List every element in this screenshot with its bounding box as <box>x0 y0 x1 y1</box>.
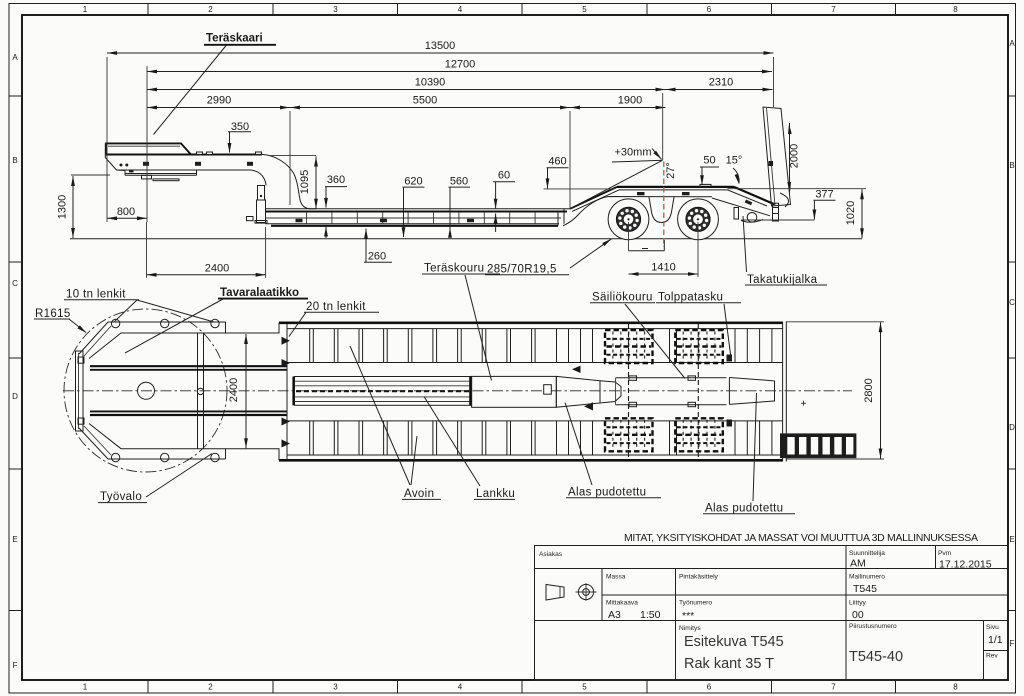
svg-text:1/1: 1/1 <box>988 634 1003 646</box>
svg-text:Asiakas: Asiakas <box>539 551 563 558</box>
svg-text:1410: 1410 <box>651 262 675 274</box>
svg-text:A: A <box>12 53 18 62</box>
svg-text:Pintakäsittely: Pintakäsittely <box>679 574 719 581</box>
svg-text:1020: 1020 <box>845 201 857 225</box>
svg-text:4: 4 <box>458 5 463 14</box>
svg-text:Piirustusnumero: Piirustusnumero <box>849 623 897 630</box>
svg-text:360: 360 <box>327 174 345 186</box>
svg-text:377: 377 <box>815 189 833 201</box>
svg-text:Alas pudotettu: Alas pudotettu <box>568 487 646 499</box>
svg-text:17.12.2015: 17.12.2015 <box>939 559 992 571</box>
svg-text:E: E <box>12 535 17 544</box>
svg-text:1: 1 <box>83 5 88 14</box>
svg-text:MITAT, YKSITYISKOHDAT JA MASSA: MITAT, YKSITYISKOHDAT JA MASSAT VOI MUUT… <box>624 532 978 544</box>
svg-text:R1615: R1615 <box>35 308 71 320</box>
svg-text:Massa: Massa <box>606 574 626 581</box>
svg-text:6: 6 <box>707 5 712 14</box>
svg-text:Pvm: Pvm <box>938 550 952 557</box>
svg-text:A: A <box>1009 39 1015 48</box>
svg-text:T545-40: T545-40 <box>849 649 903 665</box>
svg-text:Esitekuva T545: Esitekuva T545 <box>684 634 784 650</box>
svg-text:Sivu: Sivu <box>986 624 999 631</box>
svg-text:2: 2 <box>208 5 213 14</box>
svg-text:1:50: 1:50 <box>640 609 661 621</box>
svg-text:+30mm: +30mm <box>615 147 652 159</box>
svg-text:B: B <box>1009 161 1014 170</box>
svg-text:Liittyy: Liittyy <box>849 600 867 607</box>
svg-text:Takatukijalka: Takatukijalka <box>747 274 818 286</box>
svg-text:260: 260 <box>368 251 386 263</box>
svg-text:Alas pudotettu: Alas pudotettu <box>705 503 783 515</box>
svg-text:6: 6 <box>707 683 712 692</box>
svg-text:T545: T545 <box>853 583 877 595</box>
svg-text:D: D <box>12 392 18 401</box>
svg-text:7: 7 <box>831 5 836 14</box>
svg-text:Mittakaava: Mittakaava <box>606 600 638 607</box>
svg-text:Nimitys: Nimitys <box>679 625 701 632</box>
svg-text:F: F <box>13 661 18 670</box>
svg-text:Työnumero: Työnumero <box>679 600 712 607</box>
svg-text:Rev: Rev <box>986 653 998 660</box>
svg-text:2: 2 <box>208 683 213 692</box>
svg-text:3: 3 <box>333 5 338 14</box>
svg-text:Suunnittelija: Suunnittelija <box>849 550 885 557</box>
svg-text:F: F <box>1010 639 1015 648</box>
svg-text:5500: 5500 <box>413 95 437 107</box>
svg-text:Rak kant 35 T: Rak kant 35 T <box>684 656 774 672</box>
svg-text:E: E <box>1009 535 1014 544</box>
svg-text:27°: 27° <box>665 162 677 179</box>
svg-text:Tavaralaatikko: Tavaralaatikko <box>220 287 299 299</box>
svg-text:10390: 10390 <box>415 77 446 89</box>
svg-text:20 tn lenkit: 20 tn lenkit <box>306 301 366 313</box>
svg-text:Teräskouru: Teräskouru <box>424 263 484 275</box>
svg-text:3: 3 <box>333 683 338 692</box>
svg-text:60: 60 <box>498 170 510 182</box>
svg-text:7: 7 <box>831 683 836 692</box>
svg-text:B: B <box>12 156 17 165</box>
svg-text:620: 620 <box>404 176 422 188</box>
svg-text:Mallinumero: Mallinumero <box>849 574 885 581</box>
svg-text:800: 800 <box>117 206 135 218</box>
svg-text:460: 460 <box>548 156 566 168</box>
svg-text:8: 8 <box>953 683 958 692</box>
svg-text:10 tn lenkit: 10 tn lenkit <box>66 289 126 301</box>
svg-text:C: C <box>12 279 18 288</box>
svg-text:2800: 2800 <box>863 378 875 402</box>
svg-text:Työvalo: Työvalo <box>100 491 142 503</box>
svg-text:D: D <box>1009 423 1015 432</box>
svg-text:15°: 15° <box>726 155 743 167</box>
svg-text:A3: A3 <box>608 609 621 621</box>
svg-text:1095: 1095 <box>299 170 311 194</box>
svg-text:2990: 2990 <box>207 95 231 107</box>
svg-text:Säiliökouru: Säiliökouru <box>592 292 653 304</box>
svg-text:5: 5 <box>582 5 587 14</box>
svg-text:Tolppatasku: Tolppatasku <box>658 292 723 304</box>
svg-text:350: 350 <box>231 121 249 133</box>
svg-text:Avoin: Avoin <box>404 488 434 500</box>
svg-text:4: 4 <box>458 683 463 692</box>
svg-text:2400: 2400 <box>228 378 240 402</box>
svg-text:Lankku: Lankku <box>476 488 515 500</box>
svg-text:AM: AM <box>850 558 866 570</box>
svg-text:1900: 1900 <box>618 95 642 107</box>
svg-text:Teräskaari: Teräskaari <box>206 33 263 45</box>
svg-text:C: C <box>1009 298 1015 307</box>
svg-text:1300: 1300 <box>57 195 69 219</box>
svg-text:2400: 2400 <box>205 263 229 275</box>
svg-text:8: 8 <box>953 5 958 14</box>
svg-text:50: 50 <box>703 155 715 167</box>
svg-text:2310: 2310 <box>709 77 733 89</box>
svg-text:***: *** <box>682 610 694 622</box>
svg-text:13500: 13500 <box>425 40 456 52</box>
svg-text:5: 5 <box>582 683 587 692</box>
svg-text:00: 00 <box>852 609 864 621</box>
svg-text:1: 1 <box>83 683 88 692</box>
svg-text:2000: 2000 <box>789 144 801 168</box>
svg-text:560: 560 <box>450 176 468 188</box>
svg-text:12700: 12700 <box>445 59 476 71</box>
